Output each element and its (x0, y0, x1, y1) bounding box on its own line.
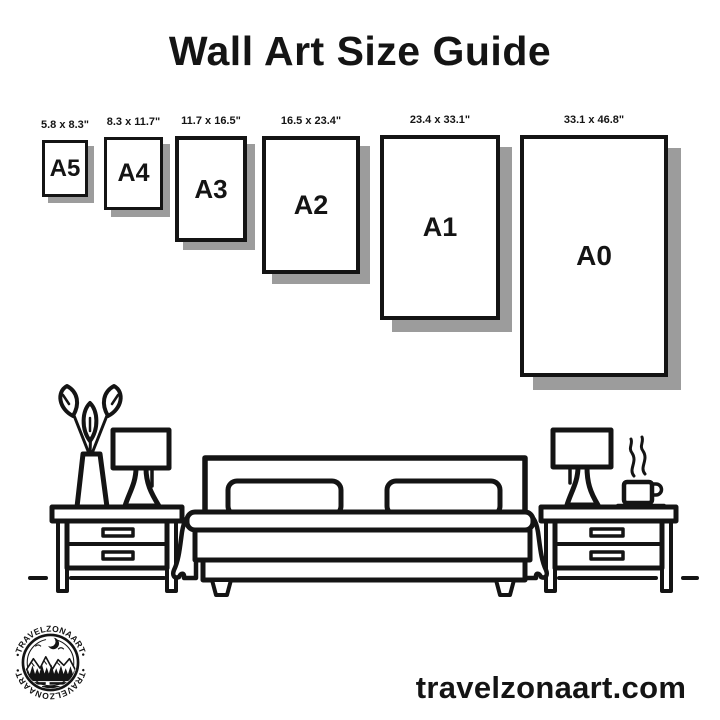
brand-logo: •TRAVELZONAART• •TRAVELZONAART• (3, 615, 98, 710)
bed-leg-left (212, 580, 231, 595)
size-item-a3: 11.7 x 16.5" A3 (175, 136, 247, 242)
bed-leg-right (496, 580, 514, 595)
coffee-cup (618, 437, 664, 506)
bedroom-illustration (0, 378, 720, 620)
mattress-front (195, 530, 530, 560)
size-dimensions-label: 23.4 x 33.1" (410, 114, 470, 126)
size-item-a2: 16.5 x 23.4" A2 (262, 136, 360, 274)
paper-frame-a2: A2 (262, 136, 360, 274)
paper-frame-a3: A3 (175, 136, 247, 242)
size-item-a0: 33.1 x 46.8" A0 (520, 135, 668, 377)
size-item-a5: 5.8 x 8.3" A5 (42, 140, 88, 197)
size-dimensions-label: 5.8 x 8.3" (41, 119, 89, 131)
size-dimensions-label: 11.7 x 16.5" (181, 115, 241, 127)
steam-icon (630, 439, 634, 476)
size-item-a1: 23.4 x 33.1" A1 (380, 135, 500, 320)
size-name-label: A4 (118, 161, 150, 186)
bed (173, 458, 547, 595)
size-item-a4: 8.3 x 11.7" A4 (104, 137, 163, 210)
table-lamp-left (113, 430, 169, 506)
size-name-label: A0 (576, 242, 612, 270)
size-dimensions-label: 33.1 x 46.8" (564, 114, 624, 126)
duvet-top (187, 512, 533, 530)
size-dimensions-label: 8.3 x 11.7" (107, 116, 161, 128)
size-guide-page: Wall Art Size Guide 5.8 x 8.3" A5 8.3 x … (0, 0, 720, 720)
website-url: travelzonaart.com (390, 670, 712, 706)
paper-frame-a0: A0 (520, 135, 668, 377)
size-dimensions-label: 16.5 x 23.4" (281, 115, 341, 127)
page-title: Wall Art Size Guide (0, 28, 720, 75)
paper-frame-a5: A5 (42, 140, 88, 197)
paper-frame-a4: A4 (104, 137, 163, 210)
size-name-label: A3 (194, 176, 227, 202)
table-lamp-right (553, 430, 611, 505)
bed-base (203, 560, 525, 580)
size-name-label: A5 (50, 157, 81, 181)
size-name-label: A2 (294, 192, 329, 219)
paper-frame-a1: A1 (380, 135, 500, 320)
size-name-label: A1 (423, 214, 458, 241)
steam-icon (641, 437, 645, 474)
